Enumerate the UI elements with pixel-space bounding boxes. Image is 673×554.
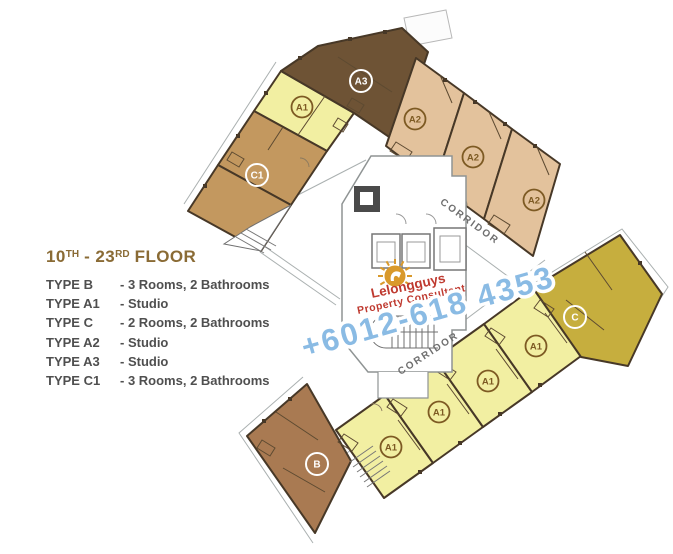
svg-text:A1: A1 bbox=[296, 103, 309, 114]
floorplan-page: CORRIDOR CORRIDOR A1 A2 A2 A2 A1 A1 A1 A… bbox=[0, 0, 673, 554]
legend-row-type-a2: TYPE A2 - Studio bbox=[46, 333, 286, 352]
svg-text:A2: A2 bbox=[467, 153, 479, 164]
svg-text:C: C bbox=[571, 313, 578, 324]
svg-text:A3: A3 bbox=[355, 77, 368, 88]
legend-desc: - 3 Rooms, 2 Bathrooms bbox=[120, 371, 270, 390]
elevator-shafts bbox=[372, 228, 466, 270]
svg-text:C1: C1 bbox=[251, 171, 264, 182]
legend-type: TYPE A3 bbox=[46, 352, 120, 371]
svg-text:A1: A1 bbox=[433, 408, 446, 419]
svg-text:B: B bbox=[313, 460, 320, 471]
legend-row-type-b: TYPE B - 3 Rooms, 2 Bathrooms bbox=[46, 275, 286, 294]
floor-title: 10TH - 23RD FLOOR bbox=[46, 247, 286, 267]
legend-desc: - 3 Rooms, 2 Bathrooms bbox=[120, 275, 270, 294]
legend-type: TYPE A2 bbox=[46, 333, 120, 352]
legend-desc: - Studio bbox=[120, 333, 168, 352]
legend-type: TYPE C1 bbox=[46, 371, 120, 390]
legend-type: TYPE B bbox=[46, 275, 120, 294]
legend-row-type-c1: TYPE C1 - 3 Rooms, 2 Bathrooms bbox=[46, 371, 286, 390]
svg-text:A1: A1 bbox=[530, 342, 543, 353]
svg-text:A2: A2 bbox=[528, 196, 540, 207]
svg-text:A1: A1 bbox=[482, 377, 495, 388]
legend-row-type-a3: TYPE A3 - Studio bbox=[46, 352, 286, 371]
svg-text:A1: A1 bbox=[385, 443, 398, 454]
legend-desc: - Studio bbox=[120, 352, 168, 371]
legend-desc: - Studio bbox=[120, 294, 168, 313]
legend-row-type-c: TYPE C - 2 Rooms, 2 Bathrooms bbox=[46, 313, 286, 332]
legend-type: TYPE C bbox=[46, 313, 120, 332]
legend-type: TYPE A1 bbox=[46, 294, 120, 313]
legend-row-type-a1: TYPE A1 - Studio bbox=[46, 294, 286, 313]
legend-desc: - 2 Rooms, 2 Bathrooms bbox=[120, 313, 270, 332]
svg-text:A2: A2 bbox=[409, 115, 421, 126]
unit-b bbox=[247, 384, 351, 533]
legend: 10TH - 23RD FLOOR TYPE B - 3 Rooms, 2 Ba… bbox=[46, 247, 286, 390]
